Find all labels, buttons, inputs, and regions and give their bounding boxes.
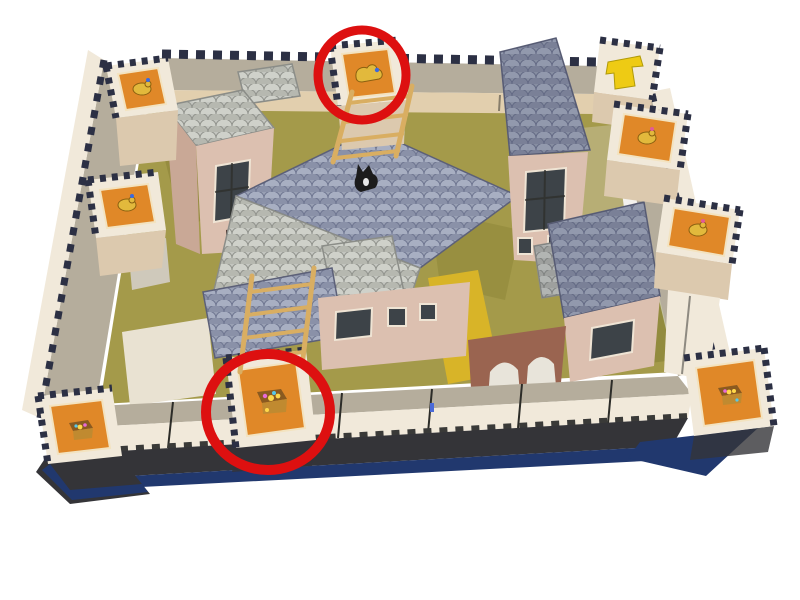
unpainted-floor-piece [122,318,216,406]
tower-bottom-right-corner [684,348,774,460]
window [388,308,406,326]
window [518,238,532,254]
tower-left-middle [88,172,166,276]
small-blue-mark [430,403,434,412]
castle-model-scene: Papercraft model of a walled medieval to… [0,0,800,600]
window [420,304,436,320]
tower-right-upper [604,104,688,206]
window [335,308,372,340]
photo-of-castle-model: Papercraft model of a walled medieval to… [0,0,800,600]
tower-bottom-left-corner [38,388,122,464]
